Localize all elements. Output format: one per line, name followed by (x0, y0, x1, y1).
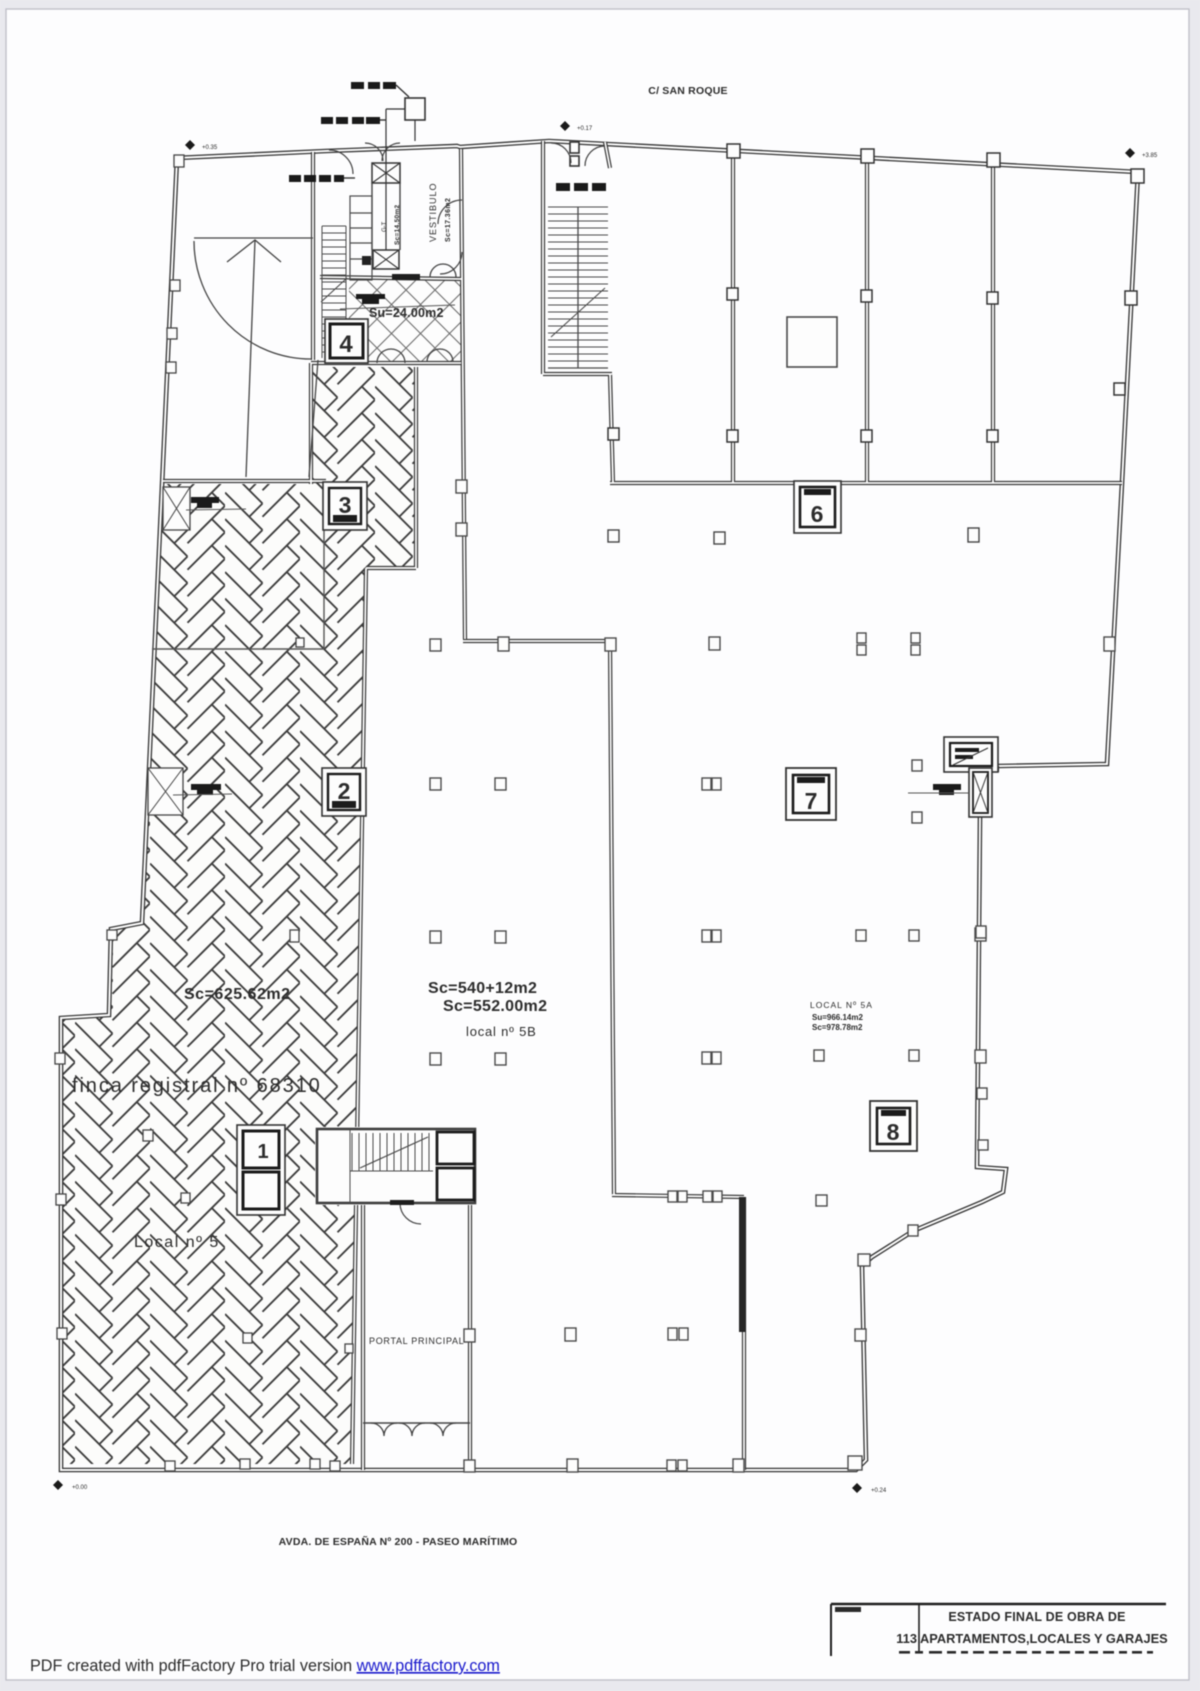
svg-text:VESTIBULO: VESTIBULO (428, 182, 438, 242)
svg-text:+0.24: +0.24 (871, 1488, 887, 1494)
svg-text:G-T: G-T (382, 221, 388, 232)
svg-text:C/ SAN ROQUE: C/ SAN ROQUE (648, 85, 727, 97)
svg-text:+3.85: +3.85 (1142, 153, 1158, 159)
svg-text:PDF created with pdfFactory Pr: PDF created with pdfFactory Pro trial ve… (30, 1657, 500, 1675)
svg-text:AVDA. DE ESPAÑA Nº 200 - PASEO: AVDA. DE ESPAÑA Nº 200 - PASEO MARÍTIMO (279, 1535, 518, 1548)
svg-text:local nº 5B: local nº 5B (466, 1024, 537, 1039)
svg-text:+0.17: +0.17 (577, 126, 593, 132)
svg-text:Local nº 5: Local nº 5 (134, 1234, 220, 1251)
svg-text:Su=966.14m2: Su=966.14m2 (812, 1013, 863, 1022)
svg-text:7: 7 (805, 788, 818, 814)
svg-text:2: 2 (338, 778, 351, 804)
svg-text:6: 6 (811, 501, 824, 527)
svg-text:Su=24.00m2: Su=24.00m2 (369, 306, 444, 320)
svg-text:PORTAL PRINCIPAL: PORTAL PRINCIPAL (369, 1336, 464, 1346)
svg-text:4: 4 (339, 331, 353, 358)
svg-text:3: 3 (339, 492, 352, 518)
svg-text:Sc=978.78m2: Sc=978.78m2 (812, 1023, 863, 1032)
svg-text:LOCAL Nº 5A: LOCAL Nº 5A (810, 1000, 873, 1010)
svg-text:Sc=540+12m2: Sc=540+12m2 (428, 980, 537, 997)
svg-text:+0.00: +0.00 (72, 1485, 88, 1491)
svg-text:Sc=625.62m2: Sc=625.62m2 (184, 986, 290, 1003)
svg-text:1: 1 (257, 1141, 268, 1163)
svg-text:8: 8 (887, 1119, 900, 1145)
svg-text:113 APARTAMENTOS,LOCALES Y GAR: 113 APARTAMENTOS,LOCALES Y GARAJES (896, 1631, 1168, 1646)
svg-text:+0.35: +0.35 (202, 145, 218, 151)
svg-text:ESTADO FINAL DE OBRA DE: ESTADO FINAL DE OBRA DE (948, 1610, 1125, 1624)
svg-text:Sc=552.00m2: Sc=552.00m2 (443, 998, 547, 1015)
svg-text:Sc=17.36m2: Sc=17.36m2 (445, 198, 452, 242)
svg-text:Sc=14.50m2: Sc=14.50m2 (394, 205, 401, 245)
svg-text:finca registral nº 68310: finca registral nº 68310 (72, 1075, 322, 1097)
